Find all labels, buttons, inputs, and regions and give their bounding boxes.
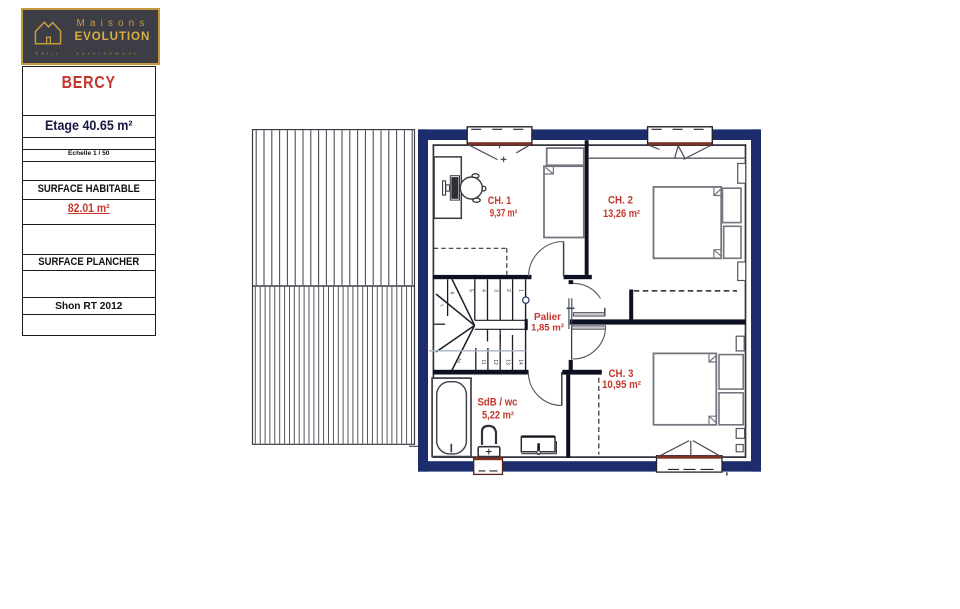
svg-text:10,95 m²: 10,95 m² xyxy=(602,379,641,391)
svg-text:1,85 m²: 1,85 m² xyxy=(531,322,564,333)
svg-text:6: 6 xyxy=(449,292,455,295)
svg-text:13,26 m²: 13,26 m² xyxy=(603,208,640,220)
svg-text:2: 2 xyxy=(505,289,511,292)
svg-text:11: 11 xyxy=(480,359,486,364)
svg-text:1: 1 xyxy=(517,289,523,292)
svg-text:12: 12 xyxy=(492,359,498,365)
svg-text:SdB / wc: SdB / wc xyxy=(478,397,518,409)
svg-text:14: 14 xyxy=(517,359,523,365)
svg-text:3: 3 xyxy=(492,289,498,292)
svg-text:13: 13 xyxy=(505,359,511,365)
svg-text:9,37 m²: 9,37 m² xyxy=(490,208,518,220)
svg-text:7: 7 xyxy=(438,303,445,309)
svg-text:CH. 1: CH. 1 xyxy=(488,195,512,207)
svg-text:CH. 2: CH. 2 xyxy=(608,195,633,207)
svg-text:5,22 m²: 5,22 m² xyxy=(482,410,514,422)
svg-text:5: 5 xyxy=(467,289,473,292)
svg-text:4: 4 xyxy=(480,289,486,292)
